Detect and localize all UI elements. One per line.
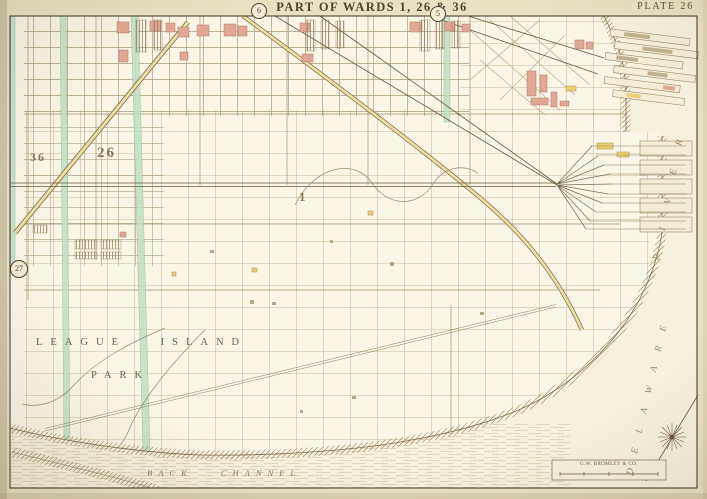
atlas-page: PART OF WARDS 1, 26 & 36 PLATE 26 6 5 27… xyxy=(0,0,707,499)
publisher-imprint: G.W. BROMLEY & CO. xyxy=(553,462,665,467)
ward-number-36: 36 xyxy=(30,150,46,165)
page-title: PART OF WARDS 1, 26 & 36 xyxy=(260,0,484,15)
map-canvas xyxy=(0,0,707,499)
adjoining-plate-marker-top-left: 6 xyxy=(251,3,267,19)
adjoining-plate-marker-left: 27 xyxy=(10,260,28,278)
label-back-channel: BACK CHANNEL xyxy=(147,468,301,478)
plate-number: PLATE 26 xyxy=(626,1,694,12)
ward-number-1: 1 xyxy=(299,189,308,205)
label-league-island: LEAGUE ISLAND xyxy=(36,337,247,348)
label-park: PARK xyxy=(91,370,150,381)
ward-number-26: 26 xyxy=(97,145,116,162)
adjoining-plate-marker-top-center: 5 xyxy=(430,6,446,22)
